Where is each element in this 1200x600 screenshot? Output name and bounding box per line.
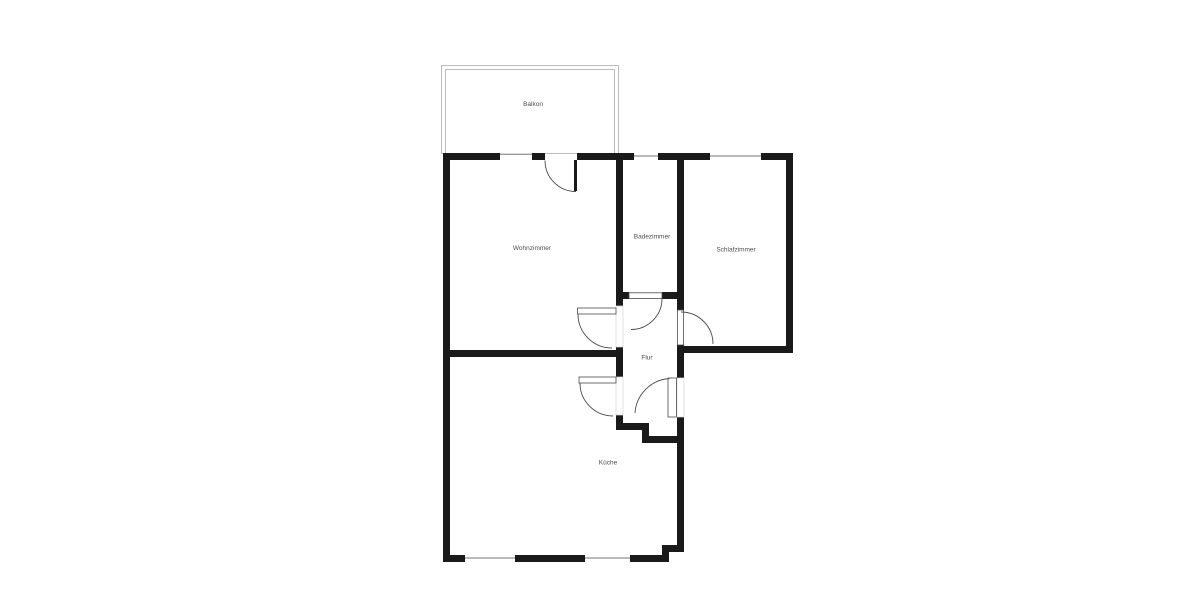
wall-segment — [786, 153, 793, 353]
room-label-badezimmer: Badezimmer — [634, 234, 671, 241]
walls — [443, 153, 793, 562]
balcony-railing-inner — [446, 70, 615, 154]
wall-segment — [677, 153, 684, 310]
wall-segment — [532, 153, 545, 160]
door-entrance — [635, 378, 684, 417]
windows — [465, 153, 761, 562]
door-swing-arc — [681, 312, 713, 344]
door-swing-arc — [635, 379, 670, 414]
door-swing-arc — [578, 314, 612, 348]
door-opening — [616, 377, 623, 415]
wall-segment — [515, 555, 585, 562]
door-leaf — [668, 378, 677, 417]
door-badezimmer — [629, 293, 662, 330]
wall-segment — [443, 350, 623, 357]
room-label-flur: Flur — [641, 355, 653, 362]
doors — [545, 160, 713, 417]
wall-segment — [630, 555, 669, 562]
window-glass-line — [585, 557, 630, 558]
wall-segment — [616, 292, 629, 299]
wall-segment — [616, 423, 649, 430]
door-leaf — [578, 308, 617, 314]
wall-segment — [616, 153, 623, 306]
door-opening — [616, 306, 623, 347]
balcony-railing-outer — [442, 66, 619, 154]
door-leaf — [677, 310, 683, 345]
window-glass-line — [500, 154, 532, 155]
door-schlafzimmer — [677, 310, 713, 345]
window-glass-line — [710, 155, 761, 156]
wall-segment — [443, 555, 465, 562]
door-balkon — [545, 160, 577, 192]
door-swing-arc — [545, 161, 576, 192]
wall-segment — [443, 153, 450, 562]
window-glass-line — [465, 557, 515, 558]
room-label-balkon: Balkon — [523, 101, 543, 108]
wall-segment — [677, 346, 793, 353]
window-schlafzimmer-top — [710, 153, 761, 160]
wall-segment — [623, 153, 634, 160]
room-label-kueche: Küche — [599, 460, 618, 467]
door-opening — [677, 378, 684, 417]
wall-segment — [443, 153, 500, 160]
floorplan-canvas: Balkon Wohnzimmer Badezimmer Schlafzimme… — [0, 0, 1200, 600]
door-wohnzimmer — [578, 306, 624, 348]
door-leaf — [574, 160, 577, 191]
window-kueche-bottom-right — [585, 555, 630, 562]
door-swing-arc — [631, 299, 662, 330]
window-glass-line — [634, 155, 658, 156]
wall-segment — [642, 430, 649, 443]
window-badezimmer-top — [634, 153, 658, 160]
door-kueche — [579, 377, 623, 416]
room-label-wohnzimmer: Wohnzimmer — [513, 245, 552, 252]
door-swing-arc — [580, 383, 613, 416]
door-leaf — [579, 377, 616, 383]
balcony-outline — [442, 66, 619, 154]
wall-segment — [649, 436, 684, 443]
door-leaf — [629, 293, 662, 299]
floorplan-page: Balkon Wohnzimmer Badezimmer Schlafzimme… — [0, 0, 1200, 600]
room-label-schlafzimmer: Schlafzimmer — [716, 247, 756, 254]
wall-segment — [662, 292, 684, 299]
window-kueche-bottom-left — [465, 555, 515, 562]
window-wohnzimmer-top — [500, 153, 532, 160]
